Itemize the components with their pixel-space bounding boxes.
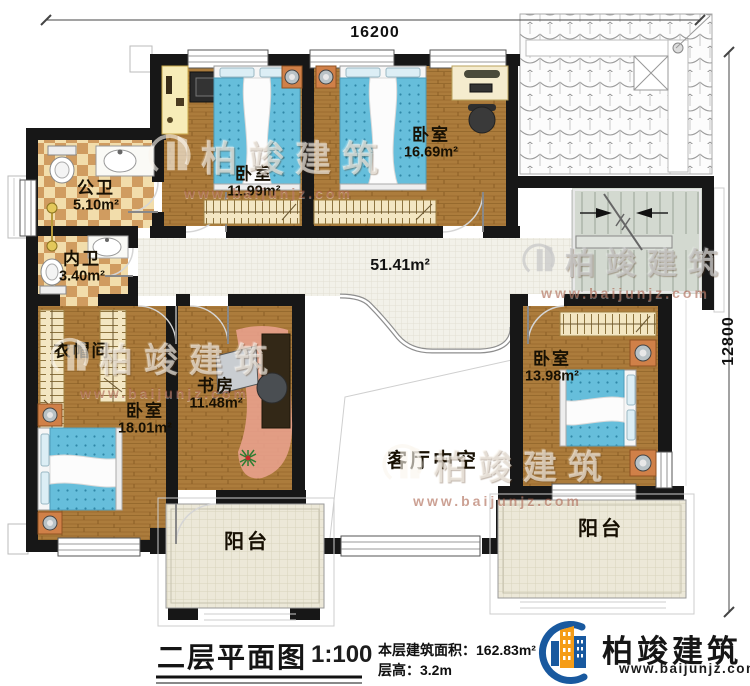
room-label-bedroom-4: 卧室 18.01m² (118, 403, 172, 438)
room-label-void: 客厅中空 (387, 450, 479, 472)
floor-height-label: 层高：3.2m (378, 660, 452, 680)
balcony-left (166, 504, 324, 608)
floor-plan-page: 公卫 5.10m² 内卫 3.40m² 卧室 11.99m² 卧室 16.69m… (0, 0, 750, 686)
room-label-balcony-right: 阳台 (578, 518, 624, 540)
room-label-bedroom-3: 卧室 13.98m² (525, 351, 579, 386)
roof-area (520, 14, 712, 174)
wardrobe (162, 66, 188, 134)
dimension-right: 12800 (720, 296, 738, 386)
drawing-scale: 1:100 (311, 641, 372, 669)
hall-area-label: 51.41m² (370, 257, 430, 275)
company-url: www.baijunjz.com (619, 661, 750, 676)
room-label-study: 书房 11.48m² (189, 378, 242, 413)
towel-rail (47, 203, 57, 213)
balcony-right (498, 500, 686, 598)
toilet-icon (48, 146, 76, 155)
room-label-inner-bath: 内卫 3.40m² (59, 251, 105, 286)
chair (257, 373, 287, 403)
floor-plan-canvas (0, 0, 750, 686)
balconies (158, 494, 694, 626)
company-logo-icon (542, 625, 586, 681)
room-label-balcony-left: 阳台 (224, 531, 270, 553)
bed (38, 428, 122, 510)
room-label-cloakroom: 衣帽间 (54, 343, 111, 362)
floor-area-label: 本层建筑面积：162.83m² (378, 640, 536, 660)
drawing-title: 二层平面图 (157, 636, 307, 676)
dimension-top: 16200 (330, 24, 420, 42)
room-label-bedroom-1: 卧室 11.99m² (227, 166, 280, 201)
room-label-public-bath: 公卫 5.10m² (73, 180, 119, 215)
room-label-bedroom-2: 卧室 16.69m² (404, 127, 458, 162)
